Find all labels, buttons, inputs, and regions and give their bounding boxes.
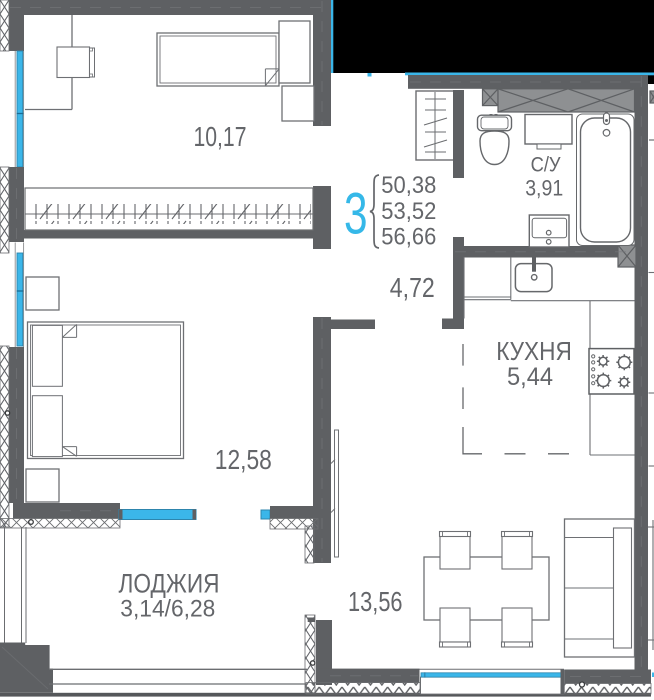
svg-text:56,66: 56,66 (381, 224, 436, 251)
svg-text:С/У: С/У (531, 153, 561, 177)
svg-text:3,91: 3,91 (525, 176, 563, 201)
svg-text:5,44: 5,44 (507, 363, 553, 391)
svg-text:53,52: 53,52 (381, 198, 436, 225)
svg-text:4,72: 4,72 (390, 272, 435, 303)
svg-text:КУХНЯ: КУХНЯ (496, 336, 572, 366)
svg-text:50,38: 50,38 (381, 172, 436, 199)
svg-text:3: 3 (344, 181, 368, 246)
svg-text:13,56: 13,56 (348, 586, 403, 617)
svg-text:ЛОДЖИЯ: ЛОДЖИЯ (119, 569, 220, 599)
svg-text:12,58: 12,58 (215, 444, 272, 475)
svg-text:3,14/6,28: 3,14/6,28 (120, 596, 215, 623)
svg-text:10,17: 10,17 (194, 121, 247, 152)
